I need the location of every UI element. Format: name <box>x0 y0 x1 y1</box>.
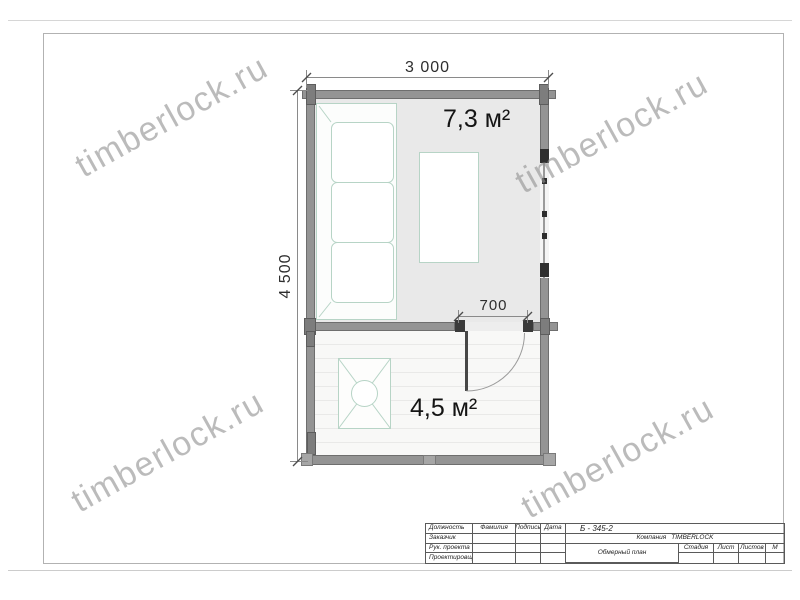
post-left-bottom <box>307 432 316 455</box>
tb-company: Компания TIMBERLOCK <box>566 534 784 544</box>
room-terrace-area-label: 4,5 м² <box>410 394 477 423</box>
tb-label-designer: Проектировщик <box>426 553 473 563</box>
dimension-width-label: 3 000 <box>385 59 470 77</box>
tb-cell-empty <box>739 553 766 563</box>
window-mullion <box>542 211 547 217</box>
tb-cell-empty <box>516 553 541 563</box>
tb-label-sheet: Лист <box>714 544 739 553</box>
post-bottom-middle <box>423 455 436 465</box>
post-top-left <box>306 84 316 105</box>
tb-label-stage: Стадия <box>679 544 714 553</box>
tb-label-surname: Фамилия <box>473 524 516 534</box>
tb-cell-empty <box>516 544 541 553</box>
tb-cell-empty <box>541 534 566 544</box>
tb-label-position: Должность <box>426 524 473 534</box>
wall-top <box>302 90 556 99</box>
tb-label-signature: Подпись <box>516 524 541 534</box>
post-bottom-right <box>543 453 556 466</box>
wall-left <box>306 98 315 457</box>
door-opening <box>465 322 523 331</box>
post-middle-right <box>540 318 550 335</box>
tb-label-project-lead: Рук. проекта <box>426 544 473 553</box>
tb-company-name: TIMBERLOCK <box>671 535 713 542</box>
dimension-door-label: 700 <box>471 297 516 314</box>
tb-doc-number: Б - 345-2 <box>566 524 784 534</box>
tb-cell-empty <box>766 553 784 563</box>
tb-cell-empty <box>473 544 516 553</box>
tb-cell-empty <box>541 553 566 563</box>
paper-top-edge <box>8 20 792 21</box>
paper-bottom-edge <box>8 570 792 571</box>
tb-label-client: Заказчик <box>426 534 473 544</box>
tb-cell-empty <box>516 534 541 544</box>
dimension-height-label: 4 500 <box>277 236 297 316</box>
room-terrace-floor <box>315 331 540 455</box>
tb-label-date: Дата <box>541 524 566 534</box>
tb-label-sheets: Листов <box>739 544 766 553</box>
tb-company-label: Компания <box>636 535 666 542</box>
tb-cell-empty <box>714 553 739 563</box>
post-bottom-left <box>301 453 313 466</box>
title-block: Должность Фамилия Подпись Дата Б - 345-2… <box>425 523 785 564</box>
post-left-lower <box>306 331 315 347</box>
tb-cell-empty <box>679 553 714 563</box>
window-mullion <box>542 233 547 239</box>
door-jamb-left <box>455 320 465 332</box>
window-cap-bottom <box>540 263 549 277</box>
tb-label-scale: М <box>766 544 784 553</box>
tb-cell-empty <box>473 534 516 544</box>
room-main-area-label: 7,3 м² <box>443 105 510 134</box>
tb-cell-empty <box>473 553 516 563</box>
wall-middle-left <box>306 322 455 331</box>
door-jamb-right <box>523 320 533 332</box>
post-top-right <box>539 84 549 105</box>
tb-drawing-title: Обмерный план <box>566 544 679 563</box>
tb-cell-empty <box>541 544 566 553</box>
